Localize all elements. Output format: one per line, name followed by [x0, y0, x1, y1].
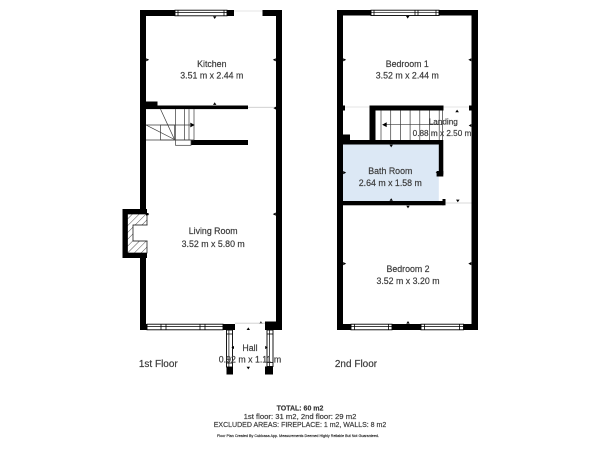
svg-text:3.52 m x 5.80 m: 3.52 m x 5.80 m	[182, 239, 245, 249]
svg-text:Bedroom 2: Bedroom 2	[386, 264, 429, 274]
svg-text:Landing: Landing	[429, 117, 459, 126]
svg-text:3.51 m x 2.44 m: 3.51 m x 2.44 m	[180, 70, 243, 80]
svg-text:2.64 m x 1.58 m: 2.64 m x 1.58 m	[359, 178, 422, 188]
svg-text:0.88 m x 2.50 m: 0.88 m x 2.50 m	[413, 129, 472, 138]
svg-text:0.92 m x 1.11 m: 0.92 m x 1.11 m	[219, 355, 281, 365]
svg-text:2nd Floor: 2nd Floor	[335, 359, 378, 370]
svg-text:1st floor: 31 m2, 2nd floor: 2: 1st floor: 31 m2, 2nd floor: 29 m2	[244, 412, 357, 421]
svg-text:3.52 m x 2.44 m: 3.52 m x 2.44 m	[376, 70, 439, 80]
svg-text:Kitchen: Kitchen	[197, 59, 226, 69]
svg-text:1st Floor: 1st Floor	[139, 359, 179, 370]
svg-text:3.52 m x 3.20 m: 3.52 m x 3.20 m	[376, 276, 439, 286]
svg-text:Hall: Hall	[242, 343, 257, 353]
svg-text:Living Room: Living Room	[189, 226, 238, 236]
svg-text:EXCLUDED AREAS: FIREPLACE: 1 m: EXCLUDED AREAS: FIREPLACE: 1 m2, WALLS: …	[214, 422, 387, 429]
svg-text:Floor Plan Created By Cubicasa: Floor Plan Created By Cubicasa App. Meas…	[217, 434, 379, 438]
svg-text:Bedroom 1: Bedroom 1	[386, 59, 429, 69]
svg-text:Bath Room: Bath Room	[368, 166, 412, 176]
